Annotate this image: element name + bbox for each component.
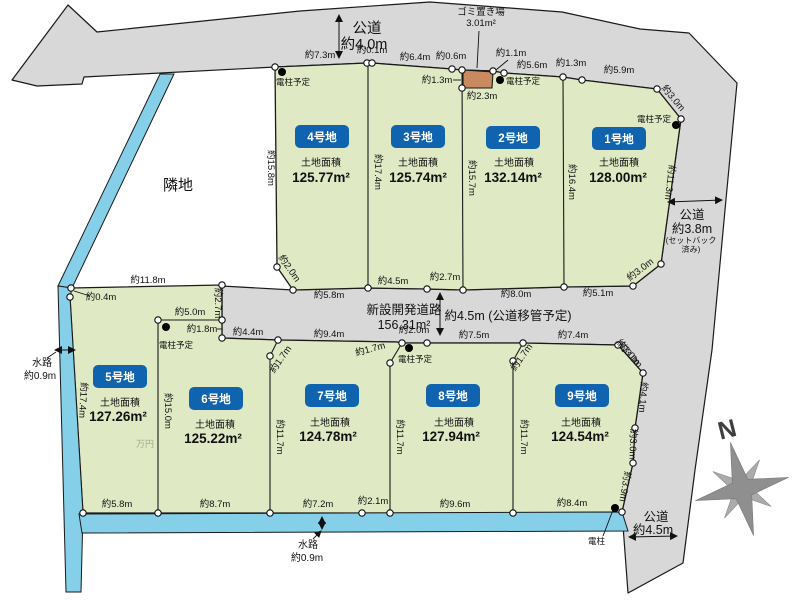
- svg-text:土地面積: 土地面積: [561, 416, 601, 429]
- svg-text:127.94m²: 127.94m²: [422, 429, 480, 444]
- svg-text:土地面積: 土地面積: [398, 156, 438, 169]
- svg-text:約6.4m: 約6.4m: [400, 51, 431, 63]
- pole-planned-label: 電柱予定: [506, 76, 541, 86]
- svg-text:約0.6m: 約0.6m: [436, 50, 467, 62]
- svg-text:約2.0m: 約2.0m: [399, 324, 430, 336]
- svg-text:124.78m²: 124.78m²: [299, 429, 357, 444]
- center-road-name: 新設開発道路: [366, 302, 442, 317]
- svg-text:約9.4m: 約9.4m: [314, 328, 345, 340]
- svg-text:約15.7m: 約15.7m: [466, 160, 478, 196]
- svg-text:約9.6m: 約9.6m: [440, 498, 471, 510]
- svg-text:土地面積: 土地面積: [310, 416, 350, 429]
- pole-planned-label: 電柱予定: [637, 114, 672, 124]
- svg-text:124.54m²: 124.54m²: [551, 429, 609, 444]
- svg-text:約5.6m: 約5.6m: [517, 59, 548, 71]
- garbage-area: 3.01m²: [466, 18, 496, 29]
- waterway-left-name: 水路: [32, 356, 52, 369]
- svg-text:約0.4m: 約0.4m: [86, 291, 117, 303]
- right-road-name: 公道: [679, 208, 705, 222]
- svg-text:土地面積: 土地面積: [494, 156, 534, 169]
- watermark-text: 万円: [136, 439, 154, 449]
- svg-text:132.14m²: 132.14m²: [484, 170, 542, 185]
- svg-text:約11.7m: 約11.7m: [394, 419, 406, 454]
- svg-text:約4.5m: 約4.5m: [378, 275, 409, 287]
- svg-text:約4.4m: 約4.4m: [233, 326, 264, 338]
- svg-text:125.74m²: 125.74m²: [389, 170, 447, 185]
- svg-text:約3.0m: 約3.0m: [626, 429, 639, 460]
- plot-map-svg: 公道 約4.0m ゴミ置き場 3.01m² 約1.3m 約2.3m 約7.3m …: [0, 0, 800, 600]
- svg-text:土地面積: 土地面積: [195, 418, 235, 431]
- svg-text:4号地: 4号地: [307, 130, 337, 144]
- svg-text:約1.1m: 約1.1m: [496, 47, 527, 59]
- compass-north-label: N: [715, 414, 739, 446]
- svg-text:約2.7m: 約2.7m: [212, 288, 224, 319]
- svg-text:3号地: 3号地: [403, 130, 433, 144]
- svg-text:125.77m²: 125.77m²: [292, 170, 350, 185]
- pole-planned-label: 電柱予定: [276, 77, 311, 87]
- svg-text:2号地: 2号地: [498, 131, 528, 145]
- pole-existing-label: 電柱: [588, 536, 606, 546]
- svg-text:1号地: 1号地: [604, 132, 634, 146]
- svg-text:128.00m²: 128.00m²: [589, 170, 647, 185]
- svg-text:約7.4m: 約7.4m: [558, 329, 589, 341]
- svg-text:約5.8m: 約5.8m: [314, 289, 345, 301]
- svg-text:約7.3m: 約7.3m: [305, 49, 336, 61]
- garbage-name: ゴミ置き場: [457, 6, 505, 18]
- svg-text:約11.7m: 約11.7m: [518, 419, 530, 454]
- svg-text:約17.4m: 約17.4m: [76, 382, 90, 419]
- svg-text:約2.1m: 約2.1m: [358, 495, 389, 507]
- svg-text:125.22m²: 125.22m²: [184, 431, 242, 446]
- svg-text:約11.7m: 約11.7m: [274, 419, 286, 454]
- neighbor-land-label: 隣地: [163, 177, 193, 194]
- svg-text:約15.8m: 約15.8m: [265, 150, 277, 186]
- garbage-dim-bottom: 約2.3m: [467, 90, 498, 102]
- svg-text:127.26m²: 127.26m²: [89, 409, 147, 424]
- svg-text:約8.0m: 約8.0m: [501, 288, 532, 300]
- svg-text:約2.7m: 約2.7m: [430, 271, 461, 283]
- waterway-bottom-name: 水路: [298, 538, 318, 551]
- pole-planned-label: 電柱予定: [159, 340, 194, 350]
- svg-text:7号地: 7号地: [317, 389, 347, 403]
- bottom-road-name: 公道: [643, 510, 669, 524]
- svg-text:土地面積: 土地面積: [599, 156, 639, 169]
- svg-text:約15.0m: 約15.0m: [162, 393, 174, 429]
- svg-text:5号地: 5号地: [105, 370, 135, 384]
- right-road-note2: 済み): [682, 244, 701, 254]
- svg-text:約8.7m: 約8.7m: [200, 498, 231, 510]
- svg-text:約4.1m: 約4.1m: [636, 382, 650, 413]
- svg-text:約0.1m: 約0.1m: [357, 44, 388, 56]
- svg-text:6号地: 6号地: [201, 392, 231, 406]
- svg-text:9号地: 9号地: [567, 389, 597, 403]
- svg-text:約5.1m: 約5.1m: [583, 287, 614, 299]
- svg-text:約5.9m: 約5.9m: [604, 64, 635, 76]
- svg-text:約1.8m: 約1.8m: [187, 323, 218, 335]
- svg-text:約7.5m: 約7.5m: [459, 329, 490, 341]
- garbage-dim-left: 約1.3m: [422, 74, 453, 86]
- right-road-width: 約3.8m: [672, 221, 712, 236]
- svg-text:土地面積: 土地面積: [100, 396, 140, 409]
- svg-text:8号地: 8号地: [438, 389, 468, 403]
- land-plot-layout-diagram: 公道 約4.0m ゴミ置き場 3.01m² 約1.3m 約2.3m 約7.3m …: [0, 0, 800, 600]
- svg-text:約8.4m: 約8.4m: [557, 497, 588, 509]
- waterway-bottom-band: [79, 512, 628, 533]
- svg-text:約1.3m: 約1.3m: [556, 57, 587, 69]
- svg-text:約5.8m: 約5.8m: [102, 498, 133, 510]
- waterway-left-width: 約0.9m: [24, 369, 56, 382]
- svg-text:土地面積: 土地面積: [301, 156, 341, 169]
- waterway-left-band: [58, 74, 174, 288]
- right-road-note1: (セットバック: [666, 236, 717, 245]
- svg-text:約17.4m: 約17.4m: [372, 154, 384, 190]
- svg-text:約11.8m: 約11.8m: [130, 274, 165, 286]
- center-road-width: 約4.5m (公道移管予定): [444, 308, 571, 323]
- svg-text:土地面積: 土地面積: [434, 416, 474, 429]
- svg-text:約7.2m: 約7.2m: [303, 498, 334, 510]
- svg-text:約5.0m: 約5.0m: [175, 306, 206, 318]
- pole-planned-label: 電柱予定: [398, 354, 433, 364]
- svg-text:約16.4m: 約16.4m: [566, 164, 578, 200]
- bottom-road-width: 約4.5m: [633, 522, 673, 537]
- top-road-name: 公道: [353, 20, 382, 37]
- garbage-area-box: [463, 70, 493, 88]
- waterway-bottom-width: 約0.9m: [291, 551, 323, 564]
